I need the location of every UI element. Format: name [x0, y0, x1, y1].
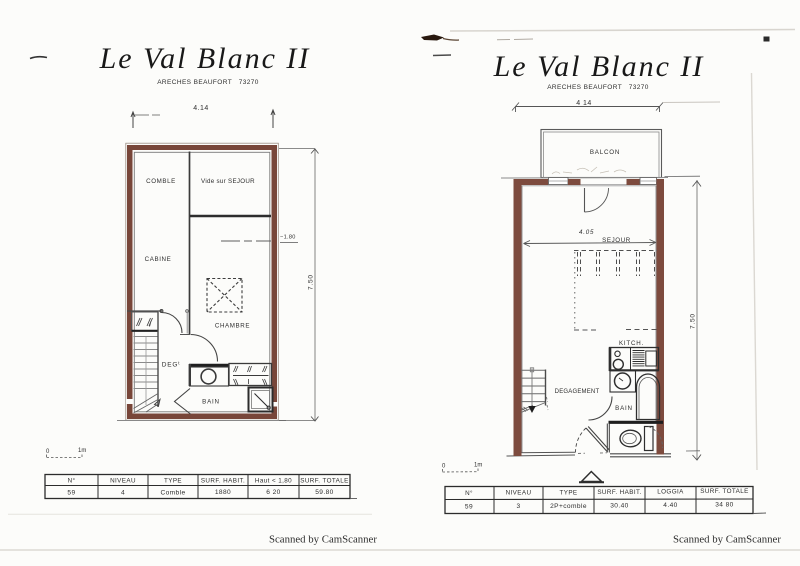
- svg-text:COMBLE: COMBLE: [146, 178, 176, 185]
- svg-text:4.05: 4.05: [579, 229, 594, 236]
- svg-text:Le Val Blanc II: Le Val Blanc II: [493, 50, 705, 83]
- svg-text:CABINE: CABINE: [145, 256, 172, 263]
- svg-text:Haut < 1,80: Haut < 1,80: [255, 478, 292, 485]
- svg-text:59: 59: [465, 504, 473, 511]
- svg-text:Scanned by CamScanner: Scanned by CamScanner: [269, 534, 377, 546]
- svg-text:34 80: 34 80: [715, 501, 734, 508]
- svg-text:ARECHES BEAUFORT 73270: ARECHES BEAUFORT 73270: [157, 79, 259, 86]
- svg-text:N°: N°: [465, 489, 473, 497]
- svg-text:Vide sur SEJOUR: Vide sur SEJOUR: [201, 178, 255, 185]
- svg-text:SURF. TOTALE: SURF. TOTALE: [300, 478, 349, 485]
- svg-text:NIVEAU: NIVEAU: [506, 490, 532, 497]
- svg-text:59.80: 59.80: [315, 489, 334, 496]
- svg-text:Comble: Comble: [160, 490, 185, 497]
- svg-text:7.50: 7.50: [308, 274, 315, 290]
- svg-text:SURF. TOTALE: SURF. TOTALE: [700, 488, 749, 495]
- svg-text:4: 4: [121, 490, 125, 497]
- svg-text:BAIN: BAIN: [615, 405, 633, 412]
- svg-text:4 14: 4 14: [576, 100, 592, 107]
- svg-text:7.50: 7.50: [690, 313, 697, 329]
- svg-text:30.40: 30.40: [610, 502, 629, 509]
- svg-text:1m: 1m: [78, 448, 86, 454]
- svg-text:−1.80: −1.80: [280, 235, 296, 241]
- svg-text:DEGAGEMENT: DEGAGEMENT: [555, 389, 600, 395]
- svg-text:BALCON: BALCON: [590, 149, 620, 156]
- svg-text:ARECHES BEAUFORT 73270: ARECHES BEAUFORT 73270: [547, 84, 649, 91]
- svg-text:SURF. HABIT.: SURF. HABIT.: [201, 478, 245, 485]
- svg-text:N°: N°: [68, 477, 76, 485]
- svg-text:2P+comble: 2P+comble: [550, 503, 587, 510]
- svg-text:KITCH.: KITCH.: [619, 340, 644, 347]
- svg-text:Scanned by CamScanner: Scanned by CamScanner: [673, 534, 781, 546]
- svg-text:NIVEAU: NIVEAU: [110, 478, 136, 485]
- svg-text:1880: 1880: [215, 489, 231, 496]
- svg-text:BAIN: BAIN: [202, 399, 220, 406]
- svg-text:CHAMBRE: CHAMBRE: [215, 323, 250, 330]
- svg-text:6 20: 6 20: [266, 489, 280, 496]
- svg-text:LOGGIA: LOGGIA: [657, 488, 684, 495]
- svg-text:59: 59: [67, 490, 75, 497]
- svg-text:4.14: 4.14: [193, 105, 209, 112]
- svg-text:Le Val Blanc II: Le Val Blanc II: [99, 42, 311, 75]
- svg-text:TYPE: TYPE: [559, 489, 577, 496]
- svg-text:3: 3: [516, 503, 520, 510]
- svg-text:SURF. HABIT.: SURF. HABIT.: [597, 489, 641, 496]
- svg-text:TYPE: TYPE: [164, 478, 182, 485]
- svg-text:4.40: 4.40: [663, 502, 677, 509]
- svg-text:DEGt: DEGt: [162, 361, 181, 369]
- svg-text:1m: 1m: [474, 463, 482, 469]
